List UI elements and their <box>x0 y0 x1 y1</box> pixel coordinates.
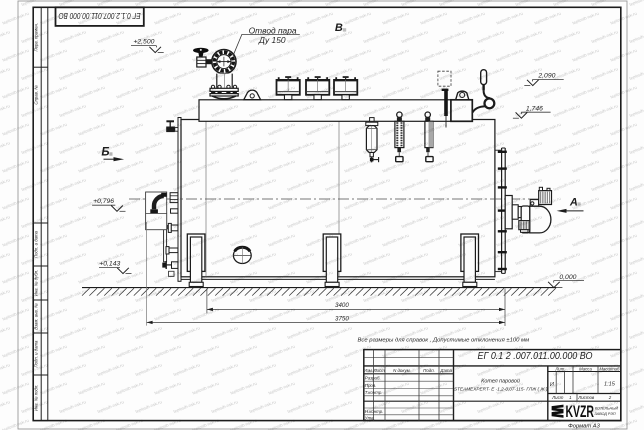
svg-text:1:15: 1:15 <box>604 381 616 387</box>
svg-text:ЗАВОД РЭП: ЗАВОД РЭП <box>594 412 615 416</box>
svg-text:Справ. №: Справ. № <box>34 85 39 105</box>
svg-text:Подп.: Подп. <box>423 368 435 373</box>
svg-text:Разраб.: Разраб. <box>365 376 381 381</box>
svg-text:Листов: Листов <box>577 395 595 400</box>
svg-text:Т.контр.: Т.контр. <box>365 390 383 395</box>
svg-text:3400: 3400 <box>335 302 349 309</box>
svg-text:2: 2 <box>608 395 612 400</box>
svg-text:Взам. инв. №: Взам. инв. № <box>34 303 39 330</box>
svg-text:Подп. и дата: Подп. и дата <box>34 340 39 368</box>
svg-text:Лист: Лист <box>551 395 564 400</box>
svg-text:Масса: Масса <box>579 366 592 371</box>
